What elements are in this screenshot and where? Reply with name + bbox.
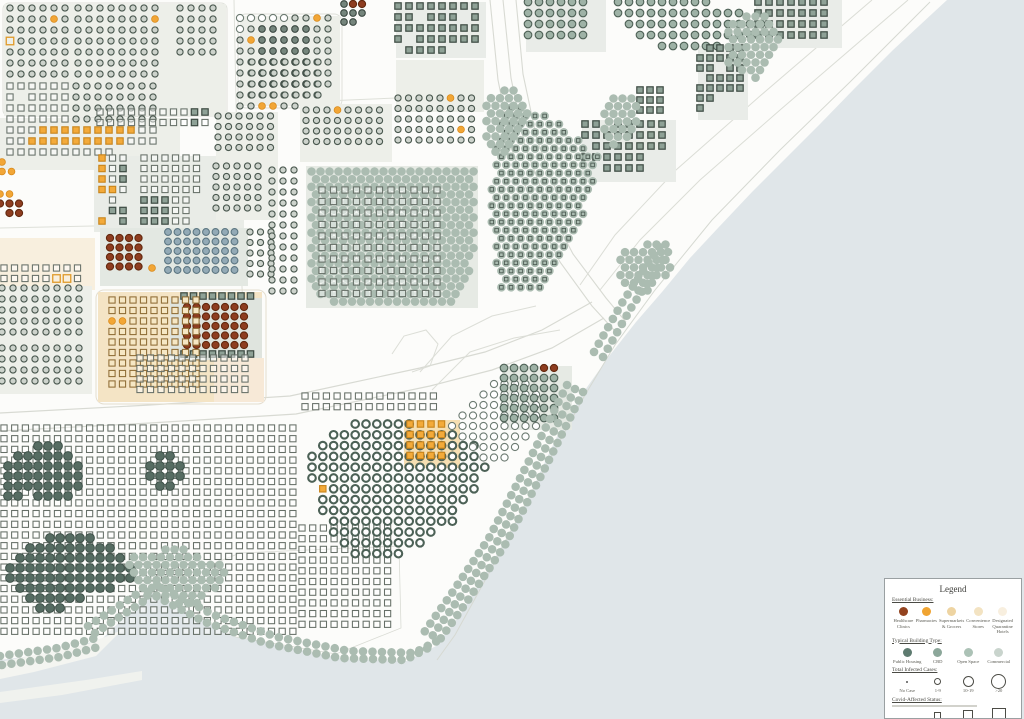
legend-item-label: Healthcare Clinics: [893, 618, 914, 629]
legend-item-label: Designated Quarantine Hotels: [992, 618, 1013, 635]
legend-swatch-icon: [916, 605, 937, 618]
city-dot-map: [0, 0, 1024, 719]
status-size-icon: [893, 709, 922, 719]
legend-section-infected-cases: Total Infected Cases:No Case1-910-19>20: [892, 667, 1014, 694]
legend-item-row: No Case1-910-19>20: [892, 675, 1014, 694]
legend-item-label: 10-19: [954, 688, 983, 694]
map-stage: Legend Essential Business:Healthcare Cli…: [0, 0, 1024, 719]
legend-item-label: 1-9: [924, 688, 953, 694]
status-square-icon: [963, 710, 973, 719]
legend-panel: Legend Essential Business:Healthcare Cli…: [884, 578, 1022, 719]
legend-item: Public Housing: [892, 646, 923, 665]
legend-sections: Essential Business:Healthcare ClinicsPha…: [892, 597, 1014, 719]
legend-swatch-icon: [954, 646, 983, 659]
color-dot-icon: [947, 607, 956, 616]
legend-item: 10-19: [953, 675, 984, 694]
case-circle-icon: [934, 678, 941, 685]
legend-subnote: [892, 705, 977, 707]
legend-item-label: Supermarkets & Grocers: [939, 618, 964, 629]
case-size-icon: [893, 675, 922, 688]
legend-swatch-icon: [924, 646, 953, 659]
legend-item-label: Open Space: [954, 659, 983, 665]
legend-swatch-icon: [992, 605, 1013, 618]
legend-item: Convenience Stores: [965, 605, 991, 629]
legend-item-label: CBD: [924, 659, 953, 665]
status-square-icon: [934, 712, 941, 719]
legend-item: >20: [984, 675, 1015, 694]
legend-swatch-icon: [893, 646, 922, 659]
legend-title: Legend: [892, 584, 1014, 594]
legend-item: Designated Quarantine Hotels: [991, 605, 1014, 635]
color-dot-icon: [933, 648, 942, 657]
legend-section-building-type: Typical Building Type:Public HousingCBDO…: [892, 638, 1014, 665]
status-size-icon: [985, 709, 1014, 719]
legend-swatch-icon: [985, 646, 1014, 659]
status-size-icon: [954, 709, 983, 719]
color-dot-icon: [964, 648, 973, 657]
legend-item: Healthcare Clinics: [892, 605, 915, 629]
legend-item: 1-9: [923, 675, 954, 694]
case-size-icon: [954, 675, 983, 688]
legend-item-label: Pharmacies: [916, 618, 937, 624]
case-size-icon: [985, 675, 1014, 688]
color-dot-icon: [998, 607, 1007, 616]
legend-section-essential-business: Essential Business:Healthcare ClinicsPha…: [892, 597, 1014, 635]
legend-item: Pharmacies: [915, 605, 938, 624]
legend-item: Special Operating Hours: [953, 709, 984, 719]
legend-item-label: No Case: [893, 688, 922, 694]
status-square-icon: [992, 708, 1006, 719]
color-dot-icon: [903, 648, 912, 657]
legend-item: Open Space: [953, 646, 984, 665]
legend-item: Supermarkets & Grocers: [938, 605, 965, 629]
legend-item: Suffered Closure: [984, 709, 1015, 719]
legend-heading: Essential Business:: [892, 597, 1014, 603]
legend-item: Commercial: [984, 646, 1015, 665]
legend-item-row: Healthcare ClinicsPharmaciesSupermarkets…: [892, 605, 1014, 635]
legend-section-covid-status: Covid-Affected Status:Not AvailableReduc…: [892, 697, 1014, 719]
legend-item-label: Commercial: [985, 659, 1014, 665]
legend-heading: Typical Building Type:: [892, 638, 1014, 644]
color-dot-icon: [899, 607, 908, 616]
case-circle-icon: [963, 676, 974, 687]
legend-swatch-icon: [893, 605, 914, 618]
legend-item: CBD: [923, 646, 954, 665]
legend-item-label: >20: [985, 688, 1014, 694]
legend-item: Not Available: [892, 709, 923, 719]
legend-heading: Total Infected Cases:: [892, 667, 1014, 673]
legend-item-row: Not AvailableReduced Business HoursSpeci…: [892, 709, 1014, 719]
legend-item: Reduced Business Hours: [923, 709, 954, 719]
case-circle-icon: [991, 674, 1006, 689]
legend-item-row: Public HousingCBDOpen SpaceCommercial: [892, 646, 1014, 665]
case-circle-icon: [906, 681, 908, 683]
legend-swatch-icon: [939, 605, 964, 618]
legend-item-label: Public Housing: [893, 659, 922, 665]
legend-item: No Case: [892, 675, 923, 694]
legend-item-label: Convenience Stores: [966, 618, 990, 629]
color-dot-icon: [922, 607, 931, 616]
color-dot-icon: [994, 648, 1003, 657]
case-size-icon: [924, 675, 953, 688]
legend-heading: Covid-Affected Status:: [892, 697, 1014, 703]
status-size-icon: [924, 709, 953, 719]
legend-swatch-icon: [966, 605, 990, 618]
color-dot-icon: [974, 607, 983, 616]
